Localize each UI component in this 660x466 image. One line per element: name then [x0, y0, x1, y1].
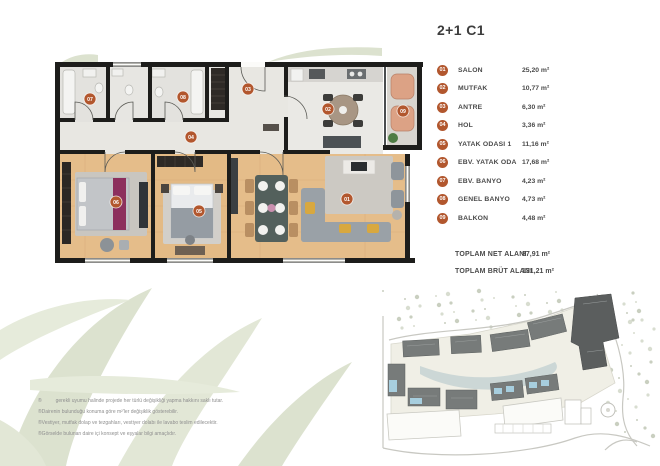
washbasin	[83, 69, 96, 77]
room-number-badge: 02	[437, 83, 448, 94]
kitchen-chair	[353, 120, 363, 127]
tree-dot	[418, 304, 421, 307]
tree-dot	[409, 315, 412, 318]
room-area: 25,20 m²	[522, 67, 549, 74]
tree-dot	[631, 291, 634, 294]
tree-dot	[615, 422, 619, 426]
room-area: 4,48 m²	[522, 215, 545, 222]
legend-row: 03ANTRE6,30 m²	[437, 98, 652, 117]
tree-dot	[649, 360, 652, 363]
room-marker-number: 01	[344, 197, 350, 203]
tree-dot	[651, 434, 655, 438]
tree-dot	[515, 305, 517, 307]
disclaimer-line: ®Dairenin bulunduğu konuma göre m²'ler d…	[38, 407, 308, 418]
room-number-badge: 05	[437, 139, 448, 150]
armchair	[100, 238, 114, 252]
stove	[309, 69, 325, 79]
room-area: 17,68 m²	[522, 159, 549, 166]
floor-plan: 010203040506070809	[55, 62, 425, 265]
room-name: GENEL BANYO	[458, 196, 522, 203]
tree-dot	[477, 289, 481, 293]
washbasin	[152, 69, 165, 77]
tree-dot	[646, 393, 649, 396]
room-number-badge: 03	[437, 102, 448, 113]
bathtub	[63, 70, 75, 114]
tree-dot	[627, 398, 629, 400]
total-row: TOPLAM BRÜT ALANI131,21 m²	[455, 263, 554, 280]
tree-dot	[524, 294, 526, 296]
tree-dot	[618, 389, 622, 393]
tree-dot	[484, 308, 486, 310]
legend-row: 02MUTFAK10,77 m²	[437, 80, 652, 99]
tv	[351, 162, 367, 171]
tree-dot	[636, 419, 638, 421]
room-marker-number: 06	[113, 200, 119, 206]
kitchen-chair	[323, 94, 333, 101]
tree-dot	[635, 301, 637, 303]
disclaimer-line: ® gerekli uyumu halinde projede her türl…	[38, 396, 308, 407]
tree-dot	[645, 380, 649, 384]
room-name: EBV. BANYO	[458, 178, 522, 185]
tree-dot	[624, 431, 626, 433]
total-value: 87,91 m²	[522, 251, 550, 258]
room-number-badge: 06	[437, 157, 448, 168]
site-plan	[375, 288, 660, 463]
legend-row: 07EBV. BANYO4,23 m²	[437, 172, 652, 191]
tree-dot	[643, 426, 646, 429]
fridge	[291, 69, 303, 81]
tree-dot	[633, 332, 635, 334]
tree-dot	[446, 292, 450, 296]
tv-unit	[139, 182, 148, 228]
unit-type-title: 2+1 C1	[437, 22, 485, 38]
pillow	[367, 224, 379, 233]
legend-row: 08GENEL BANYO4,73 m²	[437, 191, 652, 210]
pillow	[79, 182, 86, 202]
tree-dot	[475, 319, 477, 321]
kitchen-cabinet	[323, 136, 361, 148]
toilet	[155, 87, 163, 97]
tree-dot	[471, 309, 474, 312]
plant	[388, 133, 398, 143]
room-area: 4,73 m²	[522, 196, 545, 203]
tree-dot	[648, 347, 652, 351]
tree-dot	[621, 344, 623, 346]
wardrobe	[157, 156, 203, 167]
disclaimer-notes: ® gerekli uyumu halinde projede her türl…	[38, 396, 308, 440]
room-name: YATAK ODASI 1	[458, 141, 522, 148]
room-name: HOL	[458, 122, 522, 129]
tree-dot	[628, 351, 631, 354]
tree-dot	[637, 309, 641, 313]
toilet	[95, 83, 103, 93]
tree-dot	[437, 303, 441, 307]
room-name: ANTRE	[458, 104, 522, 111]
room-marker-number: 03	[245, 87, 251, 93]
total-label: TOPLAM NET ALANI	[455, 251, 522, 258]
tree-dot	[449, 301, 452, 304]
balcony-glass-wall	[384, 67, 386, 145]
tree-dot	[622, 302, 625, 305]
total-row: TOPLAM NET ALANI87,91 m²	[455, 246, 554, 263]
room-area: 4,23 m²	[522, 178, 545, 185]
room-area: 10,77 m²	[522, 85, 549, 92]
side-table	[392, 210, 402, 220]
kitchen-chair	[353, 94, 363, 101]
room-name: BALKON	[458, 215, 522, 222]
room-name: MUTFAK	[458, 85, 522, 92]
tree-dot	[546, 302, 548, 304]
washbasin	[112, 69, 123, 76]
room-number-badge: 07	[437, 176, 448, 187]
tree-dot	[415, 295, 419, 299]
tree-dot	[630, 365, 632, 367]
tree-dot	[555, 291, 557, 293]
shelf-unit	[231, 158, 238, 214]
sofa-chaise	[301, 188, 325, 242]
pillow	[79, 206, 86, 226]
tree-dot	[652, 327, 655, 330]
tree-dot	[444, 322, 446, 324]
disclaimer-line: ®Vestiyer, mutfak dolap ve tezgahları, v…	[38, 418, 308, 429]
legend-row: 04HOL3,36 m²	[437, 117, 652, 136]
total-value: 131,21 m²	[522, 268, 554, 275]
tree-dot	[382, 290, 384, 292]
entrance-opening	[241, 62, 265, 67]
desk-chair	[185, 235, 195, 245]
room-name: SALON	[458, 67, 522, 74]
room-marker-number: 08	[180, 95, 186, 101]
room-number-badge: 01	[437, 65, 448, 76]
tree-dot	[486, 316, 490, 320]
room-number-badge: 08	[437, 194, 448, 205]
tree-dot	[455, 319, 459, 323]
room-marker-number: 04	[188, 135, 194, 141]
tree-dot	[400, 326, 403, 329]
tree-dot	[493, 297, 495, 299]
nightstand	[161, 184, 169, 193]
pillow	[305, 202, 315, 214]
nightstand	[215, 184, 223, 193]
centerpiece	[268, 204, 276, 212]
wardrobe	[62, 162, 71, 244]
tree-dot	[634, 405, 637, 408]
pillow	[339, 224, 351, 233]
tree-dot	[517, 313, 521, 317]
tree-dot	[435, 295, 437, 297]
pillow	[173, 186, 190, 195]
tree-dot	[480, 298, 483, 301]
legend-row: 09BALKON4,48 m²	[437, 209, 652, 228]
room-area: 3,36 m²	[522, 122, 545, 129]
area-totals: TOPLAM NET ALANI87,91 m²TOPLAM BRÜT ALAN…	[455, 246, 554, 280]
room-legend: 01SALON25,20 m²02MUTFAK10,77 m²03ANTRE6,…	[437, 61, 652, 228]
room-marker-number: 05	[196, 209, 202, 215]
kitchen-chair	[323, 120, 333, 127]
pillow	[194, 186, 211, 195]
tree-dot	[618, 377, 620, 379]
desk	[175, 246, 205, 255]
room-area: 11,16 m²	[522, 141, 549, 148]
tree-dot	[637, 372, 640, 375]
hall-console	[263, 124, 279, 131]
room-name: EBV. YATAK ODA	[458, 159, 522, 166]
toilet	[125, 85, 133, 95]
tree-dot	[413, 325, 415, 327]
armchair	[391, 162, 404, 180]
room-area: 6,30 m²	[522, 104, 545, 111]
legend-row: 06EBV. YATAK ODA17,68 m²	[437, 154, 652, 173]
tree-dot	[526, 302, 530, 306]
tree-dot	[404, 298, 406, 300]
room-number-badge: 09	[437, 213, 448, 224]
armchair	[391, 190, 404, 208]
total-label: TOPLAM BRÜT ALANI	[455, 268, 522, 275]
disclaimer-line: ®Görselde bulunan daire içi konsept ve e…	[38, 429, 308, 440]
tree-dot	[406, 306, 410, 310]
blanket	[171, 208, 213, 238]
tree-dot	[640, 318, 643, 321]
tree-dot	[529, 311, 532, 314]
tree-dot	[640, 339, 643, 342]
tree-dot	[397, 317, 401, 321]
tree-dot	[511, 295, 514, 298]
brochure-page: 010203040506070809 2+1 C1 01SALON25,20 m…	[0, 0, 660, 466]
room-marker-number: 02	[325, 107, 331, 113]
room-marker-number: 09	[400, 109, 406, 115]
tree-dot	[626, 312, 628, 314]
tree-dot	[631, 318, 634, 321]
ottoman	[119, 240, 129, 250]
legend-row: 05YATAK ODASI 111,16 m²	[437, 135, 652, 154]
room-marker-number: 07	[87, 97, 93, 103]
bathtub	[191, 70, 203, 114]
lounge-chair	[391, 74, 414, 99]
room-number-badge: 04	[437, 120, 448, 131]
legend-row: 01SALON25,20 m²	[437, 61, 652, 80]
tree-dot	[440, 312, 443, 315]
tree-dot	[557, 299, 561, 303]
tree-dot	[453, 311, 455, 313]
